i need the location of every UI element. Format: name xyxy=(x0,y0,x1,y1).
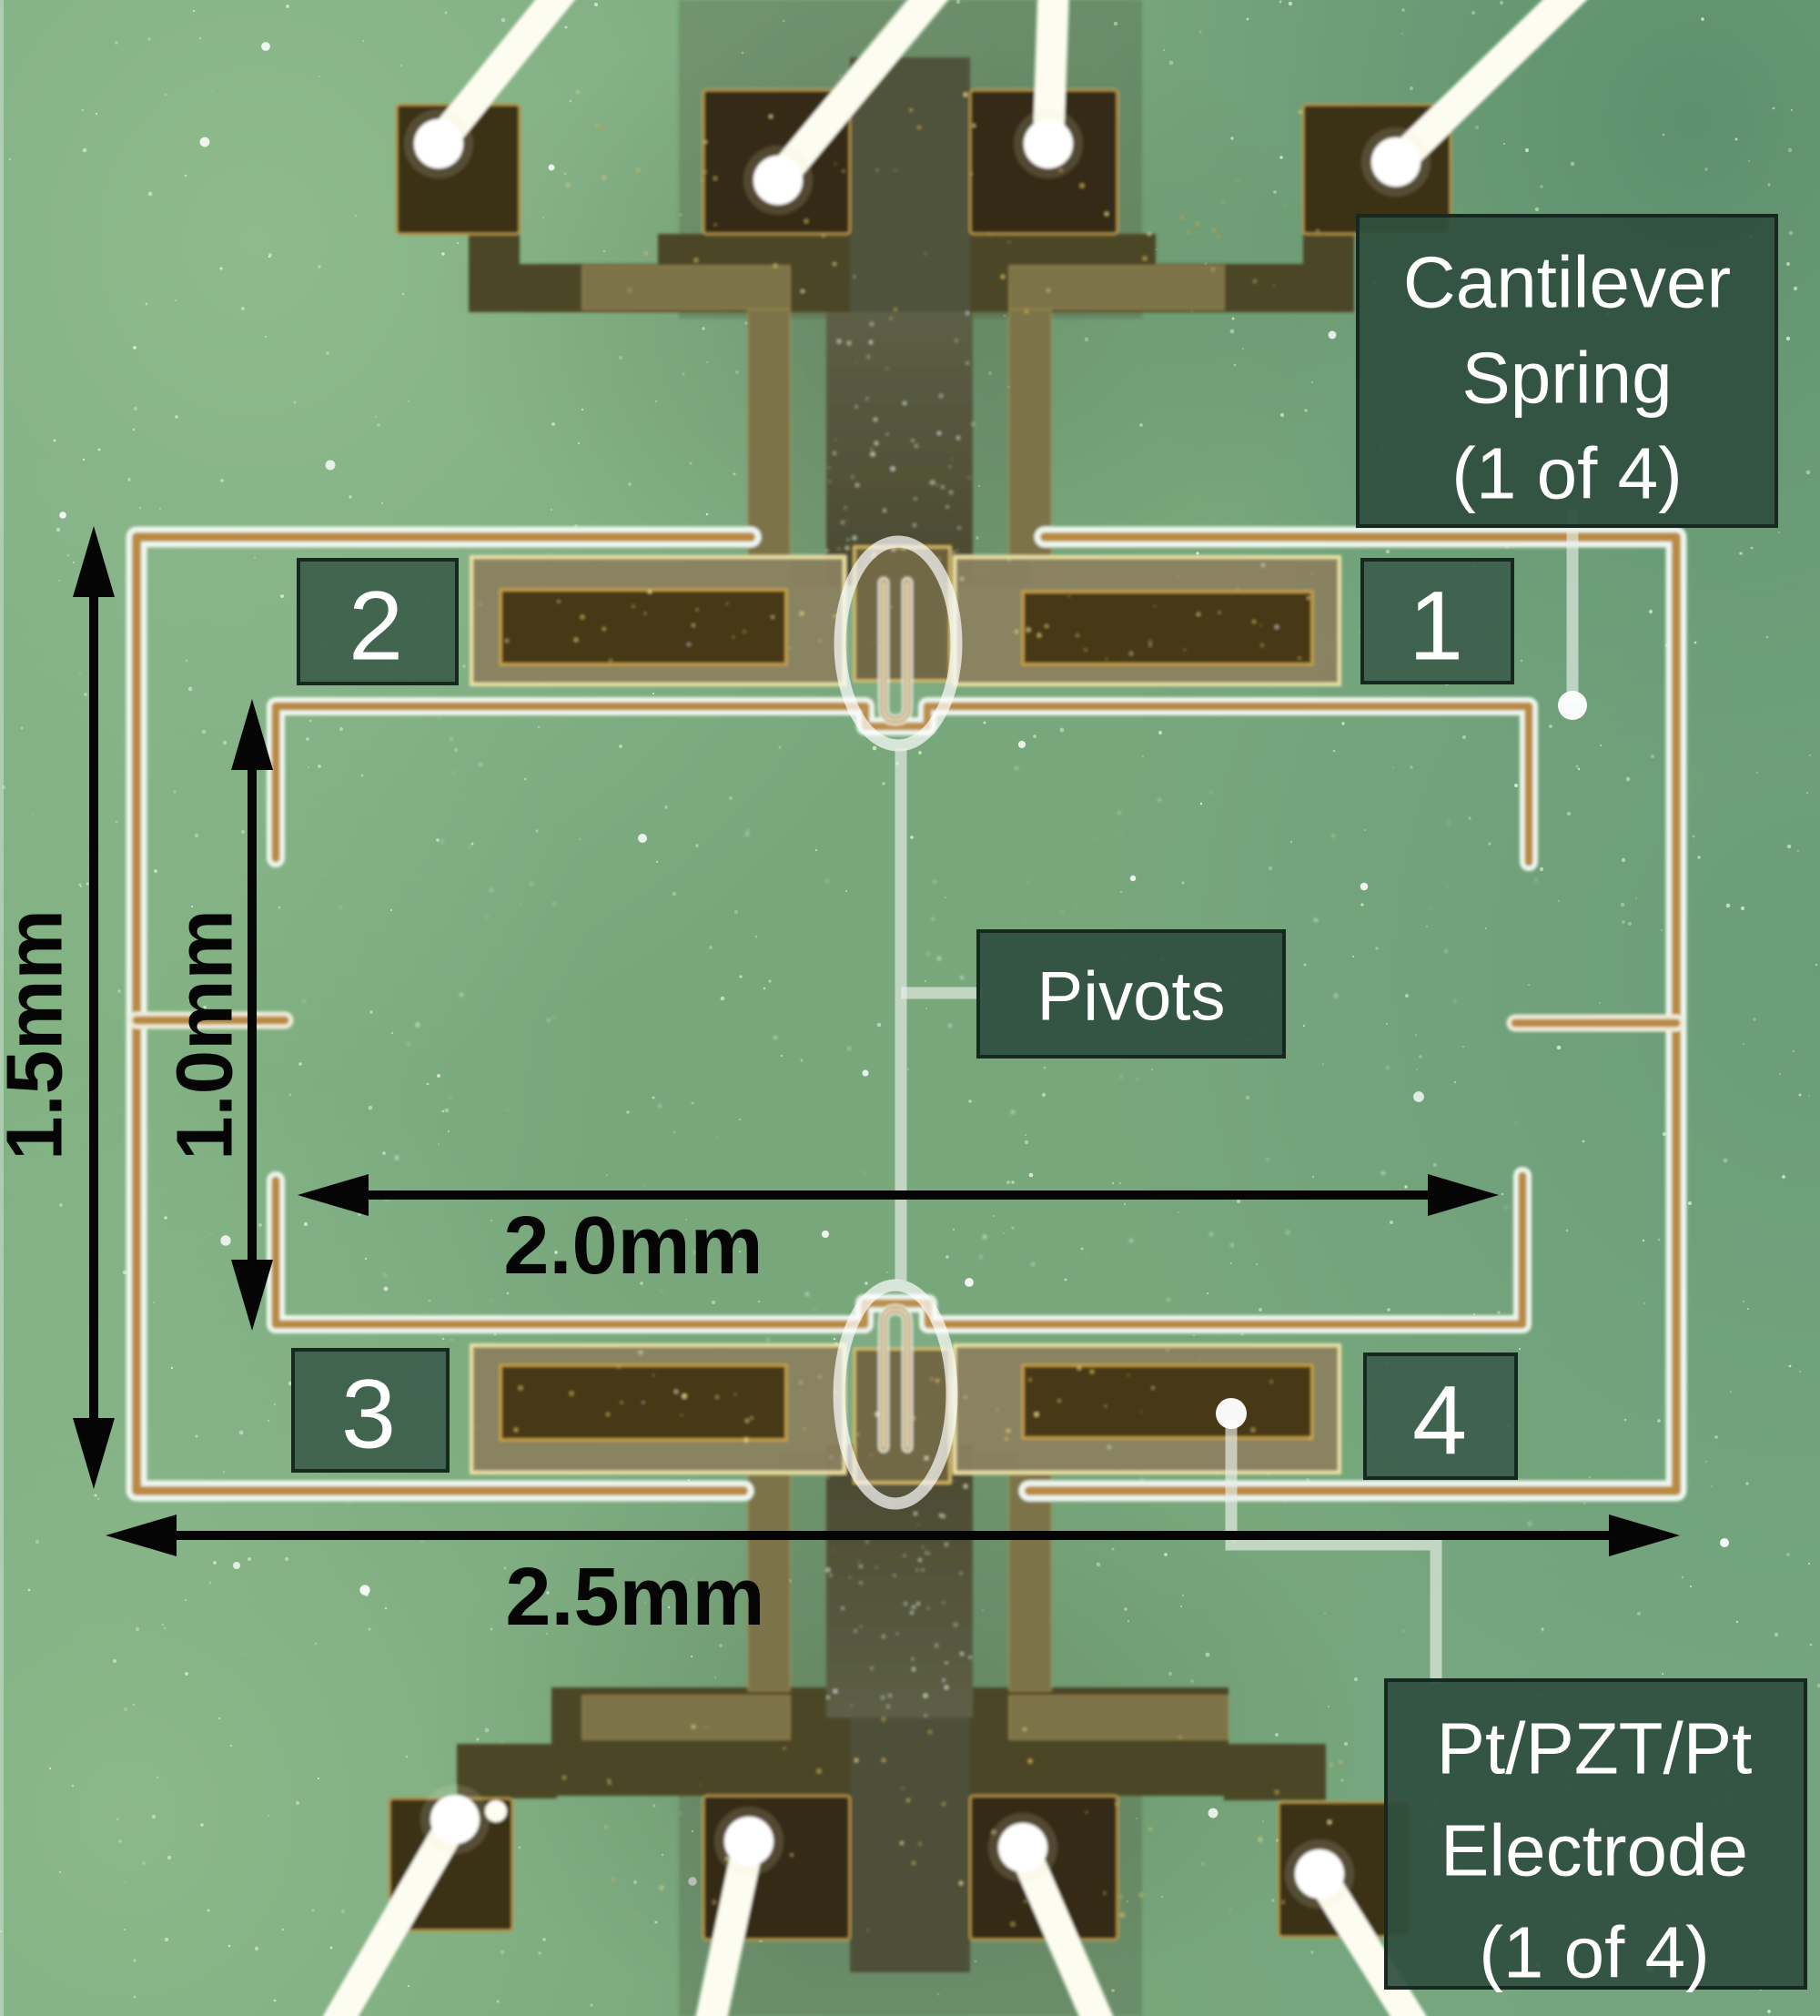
svg-text:2.0mm: 2.0mm xyxy=(503,1200,763,1292)
svg-text:Pivots: Pivots xyxy=(1037,958,1226,1036)
svg-text:(1 of 4): (1 of 4) xyxy=(1451,433,1682,514)
svg-text:(1 of 4): (1 of 4) xyxy=(1479,1912,1709,1993)
svg-text:Electrode: Electrode xyxy=(1441,1810,1748,1891)
svg-text:Cantilever: Cantilever xyxy=(1403,242,1731,323)
svg-text:1.5mm: 1.5mm xyxy=(0,909,79,1160)
svg-text:Pt/PZT/Pt: Pt/PZT/Pt xyxy=(1437,1708,1753,1789)
svg-text:1.0mm: 1.0mm xyxy=(161,909,249,1160)
svg-text:4: 4 xyxy=(1412,1365,1467,1475)
svg-text:1: 1 xyxy=(1409,571,1463,681)
svg-text:2.5mm: 2.5mm xyxy=(505,1552,764,1643)
svg-text:3: 3 xyxy=(341,1359,396,1469)
svg-text:Spring: Spring xyxy=(1461,338,1672,419)
svg-text:2: 2 xyxy=(349,571,403,681)
